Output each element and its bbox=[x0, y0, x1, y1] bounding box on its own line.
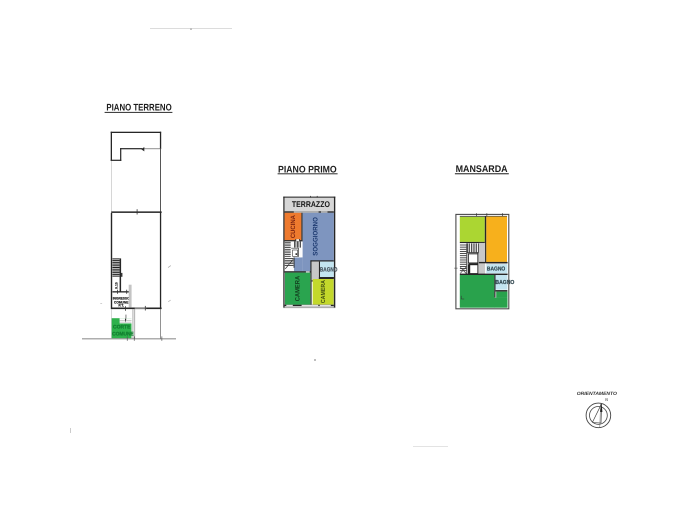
svg-text:CUCINA: CUCINA bbox=[290, 215, 297, 238]
svg-text:ORIENTAMENTO: ORIENTAMENTO bbox=[577, 391, 617, 396]
svg-text:BAGNO: BAGNO bbox=[320, 267, 338, 274]
svg-text:N: N bbox=[605, 397, 609, 402]
svg-text:SOGGIORNO: SOGGIORNO bbox=[313, 217, 320, 256]
svg-text:CAMERA: CAMERA bbox=[320, 280, 327, 304]
svg-text:CAMERA: CAMERA bbox=[295, 275, 302, 301]
svg-text:BAGNO: BAGNO bbox=[487, 267, 506, 273]
svg-text:PIANO TERRENO: PIANO TERRENO bbox=[106, 102, 172, 113]
svg-text:COMUNE: COMUNE bbox=[112, 332, 134, 338]
svg-text:TERRAZZO: TERRAZZO bbox=[292, 199, 330, 209]
svg-text:P.T.: P.T. bbox=[118, 304, 124, 308]
svg-text:CORTE: CORTE bbox=[113, 325, 131, 331]
svg-text:MANSARDA: MANSARDA bbox=[456, 164, 508, 175]
svg-text:BAGNO: BAGNO bbox=[495, 279, 514, 286]
svg-text:9.15: 9.15 bbox=[114, 282, 118, 289]
